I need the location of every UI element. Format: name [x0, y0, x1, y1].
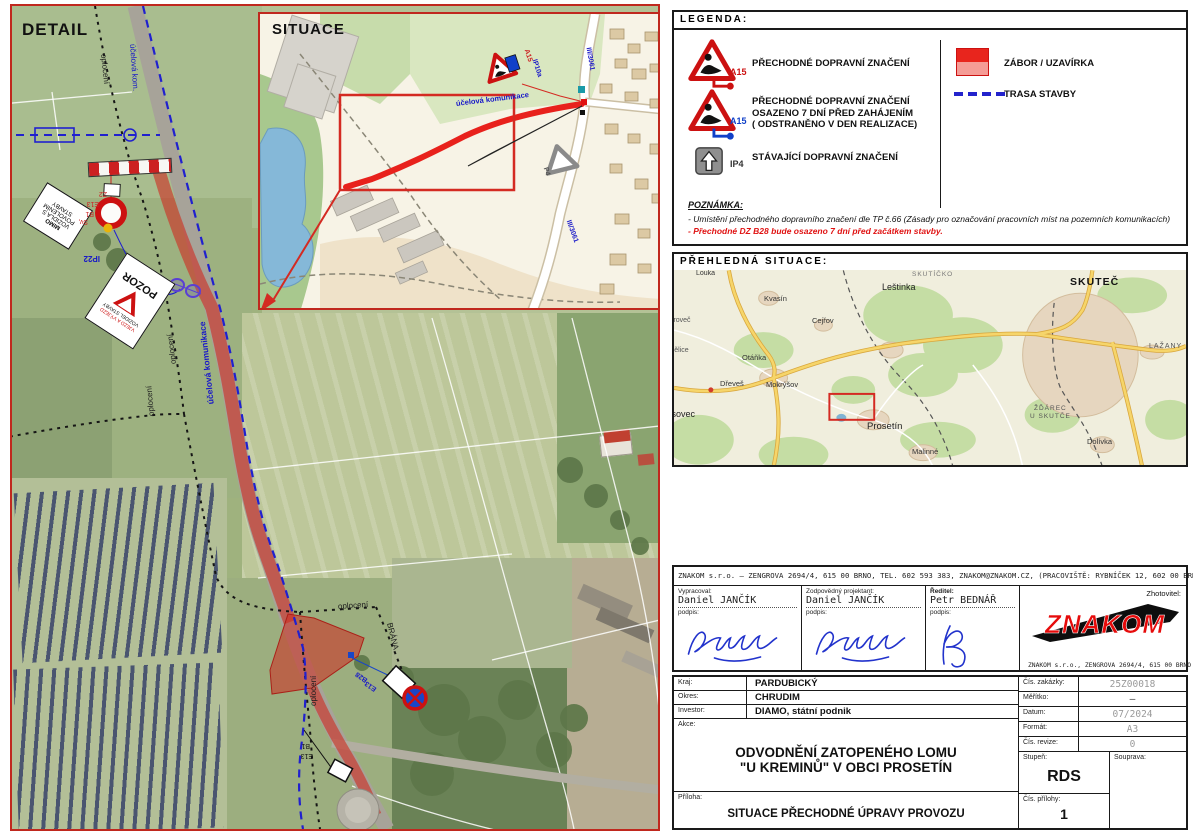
map-label: Leštinka — [882, 283, 916, 292]
signature-col-projektant: Zodpovědný projektant: Daniel JANČÍK pod… — [802, 586, 926, 671]
trasa-dashes — [954, 92, 1005, 96]
legend-zabor-text: ZÁBOR / UZAVÍRKA — [1004, 58, 1094, 70]
map-label: Dolívka — [1087, 438, 1112, 446]
legend-divider — [940, 40, 941, 208]
akce-line1: ODVODNĚNÍ ZATOPENÉHO LOMU — [735, 745, 957, 760]
map-label: B1 — [301, 742, 310, 749]
situace-title: SITUACE — [272, 21, 345, 38]
a15-sign-icon — [686, 38, 738, 90]
zakazka-value: 25Z00018 — [1110, 679, 1156, 690]
map-label: stroveč — [674, 317, 691, 324]
situace-labels: A15IP10aIII/3061III/3061účelová komunika… — [260, 14, 658, 308]
podpis-label: podpis: — [930, 609, 1015, 616]
overview-map: LoukaSKUTÍČKOLeštinkaSKUTEČLAŽANYKvasínC… — [674, 270, 1186, 465]
map-label: Prosetín — [867, 422, 902, 432]
revize-label: Čís. revize: — [1023, 739, 1058, 746]
note-title: POZNÁMKA: — [688, 200, 743, 210]
revize-value: 0 — [1130, 739, 1136, 750]
title-block: Kraj: PARDUBICKÝ Okres: CHRUDIM Investor… — [672, 675, 1188, 830]
overview-labels: LoukaSKUTÍČKOLeštinkaSKUTEČLAŽANYKvasínC… — [674, 270, 1186, 465]
podpis-label: podpis: — [806, 609, 921, 616]
col-label: Zodpovědný projektant: — [806, 588, 921, 595]
map-label: Sv, — [78, 218, 88, 225]
meritko-label: Měřítko: — [1023, 694, 1048, 701]
note-line-1: - Umístění přechodného dopravního značen… — [688, 214, 1170, 224]
map-label: oplocení — [310, 676, 318, 706]
akce-line2: "U KREMINŮ" V OBCI PROSETÍN — [740, 760, 952, 775]
format-label: Formát: — [1023, 724, 1047, 731]
znakom-logo: ZNAKOM — [1030, 602, 1180, 646]
map-label: oplocení — [338, 601, 369, 611]
map-label: účelová komunikace — [456, 91, 530, 107]
person-name: Daniel JANČÍK — [806, 595, 921, 608]
map-label: IP22 — [84, 254, 100, 262]
map-label: E13 — [87, 200, 99, 207]
drawing-sheet: MIMO VOZIDLA S POVOLENÍM STAVBY VJEZD A … — [0, 0, 1193, 838]
map-label: Otáňka — [742, 354, 766, 362]
legend-item-line: PŘECHODNÉ DOPRAVNÍ ZNAČENÍ — [752, 96, 917, 108]
map-label: Kvasín — [764, 295, 787, 303]
legend-trasa-text: TRASA STAVBY — [1004, 89, 1076, 101]
signature-col-reditel: Ředitel: Petr BEDNÁŘ podpis: — [926, 586, 1020, 671]
kraj-value: PARDUBICKÝ — [755, 678, 818, 689]
format-value: A3 — [1127, 724, 1138, 735]
situace-inset: A15IP10aIII/3061III/3061účelová komunika… — [258, 12, 660, 310]
overview-box: PŘEHLEDNÁ SITUACE: — [672, 252, 1188, 467]
souprava-label: Souprava: — [1114, 754, 1146, 761]
zabor-swatch — [956, 48, 989, 76]
okres-value: CHRUDIM — [755, 692, 800, 703]
a15-sign-icon — [686, 88, 738, 140]
meritko-value: — — [1130, 694, 1136, 705]
map-label: účelová komunikace — [198, 321, 215, 405]
legend-item-line: OSAZENO 7 DNÍ PŘED ZAHÁJENÍM — [752, 108, 917, 120]
legend-item-text: PŘECHODNÉ DOPRAVNÍ ZNAČENÍ OSAZENO 7 DNÍ… — [752, 96, 917, 131]
map-label: oplocení — [145, 386, 156, 417]
znakom-logo-text: ZNAKOM — [1044, 609, 1165, 639]
legend-box: LEGENDA: A15 PŘECHODNÉ DOPRAVNÍ ZNAČENÍ … — [672, 10, 1188, 246]
map-label: ŽĎÁREC — [1034, 406, 1067, 413]
map-label: rbělice — [674, 347, 689, 354]
map-label: U SKUTČE — [1030, 414, 1071, 421]
signature — [934, 620, 994, 668]
kraj-label: Kraj: — [678, 679, 692, 686]
zhotovitel-label: Zhotovitel: — [1146, 589, 1181, 598]
podpis-label: podpis: — [678, 609, 797, 616]
legend-code-a15-blue: A15 — [730, 116, 747, 126]
map-label: Cejřov — [812, 317, 834, 325]
map-label: IP10a — [531, 58, 543, 78]
map-label: oplocení — [166, 333, 178, 364]
map-label: ísovec — [674, 410, 695, 419]
detail-map-title: DETAIL — [22, 20, 88, 40]
person-name: Petr BEDNÁŘ — [930, 595, 1015, 608]
note-line-2: - Přechodné DZ B28 bude osazeno 7 dní př… — [688, 226, 943, 236]
legend-title: LEGENDA: — [674, 12, 1186, 30]
col-label: Vypracoval: — [678, 588, 797, 595]
map-label: Dřeveš — [720, 380, 744, 388]
datum-value: 07/2024 — [1112, 709, 1152, 720]
map-label: LAŽANY — [1149, 343, 1182, 350]
map-label: Louka — [696, 270, 715, 277]
datum-label: Datum: — [1023, 709, 1046, 716]
priloha-value: SITUACE PŘECHODNÉ ÚPRAVY PROVOZU — [727, 808, 964, 820]
map-label: P4 — [542, 166, 551, 176]
legend-code-a15: A15 — [730, 67, 747, 77]
map-label: III/3061 — [585, 47, 596, 71]
map-label: E13 — [364, 679, 378, 692]
signature-col-vypracoval: Vypracoval: Daniel JANČÍK podpis: — [674, 586, 802, 671]
akce-label: Akce: — [678, 721, 696, 728]
stupen-value: RDS — [1047, 768, 1081, 786]
map-label: E13 — [301, 752, 313, 759]
map-label: oplocení — [99, 54, 110, 85]
company-block: ZNAKOM s.r.o. – ZENGROVA 2694/4, 615 00 … — [672, 565, 1188, 672]
map-label: BRÁNA — [385, 622, 399, 651]
okres-label: Okres: — [678, 693, 699, 700]
col-label: Ředitel: — [930, 588, 1015, 595]
map-label: Z2 — [99, 190, 107, 197]
investor-label: Investor: — [678, 707, 705, 714]
signature — [682, 620, 787, 668]
signature — [810, 620, 915, 668]
investor-value: DIAMO, státní podnik — [755, 706, 851, 717]
zhotovitel-col: Zhotovitel: ZNAKOM ZNAKOM s.r.o., ZENGRO… — [1020, 586, 1186, 671]
map-label: B1 — [85, 210, 94, 217]
zakazka-label: Čís. zakázky: — [1023, 679, 1065, 686]
legend-item-line: ( ODSTRANĚNO V DEN REALIZACE) — [752, 119, 917, 131]
map-label: účelová kom. — [128, 44, 139, 92]
person-name: Daniel JANČÍK — [678, 595, 797, 608]
map-label: III/3061 — [565, 219, 580, 243]
legend-item-text: PŘECHODNÉ DOPRAVNÍ ZNAČENÍ — [752, 58, 910, 70]
legend-item-text: STÁVAJÍCÍ DOPRAVNÍ ZNAČENÍ — [752, 152, 898, 164]
znakom-address: ZNAKOM s.r.o., ZENGROVA 2694/4, 615 00 B… — [1028, 662, 1191, 669]
map-label: SKUTEČ — [1070, 277, 1119, 288]
map-label: Malinné — [912, 448, 938, 456]
map-label: SKUTÍČKO — [912, 272, 953, 279]
prilohy-value: 1 — [1060, 806, 1068, 822]
company-header: ZNAKOM s.r.o. – ZENGROVA 2694/4, 615 00 … — [674, 567, 1186, 586]
legend-code-ip4: IP4 — [730, 159, 744, 169]
map-label: Mokrýšov — [766, 381, 798, 389]
ip4-sign-icon — [694, 146, 724, 176]
